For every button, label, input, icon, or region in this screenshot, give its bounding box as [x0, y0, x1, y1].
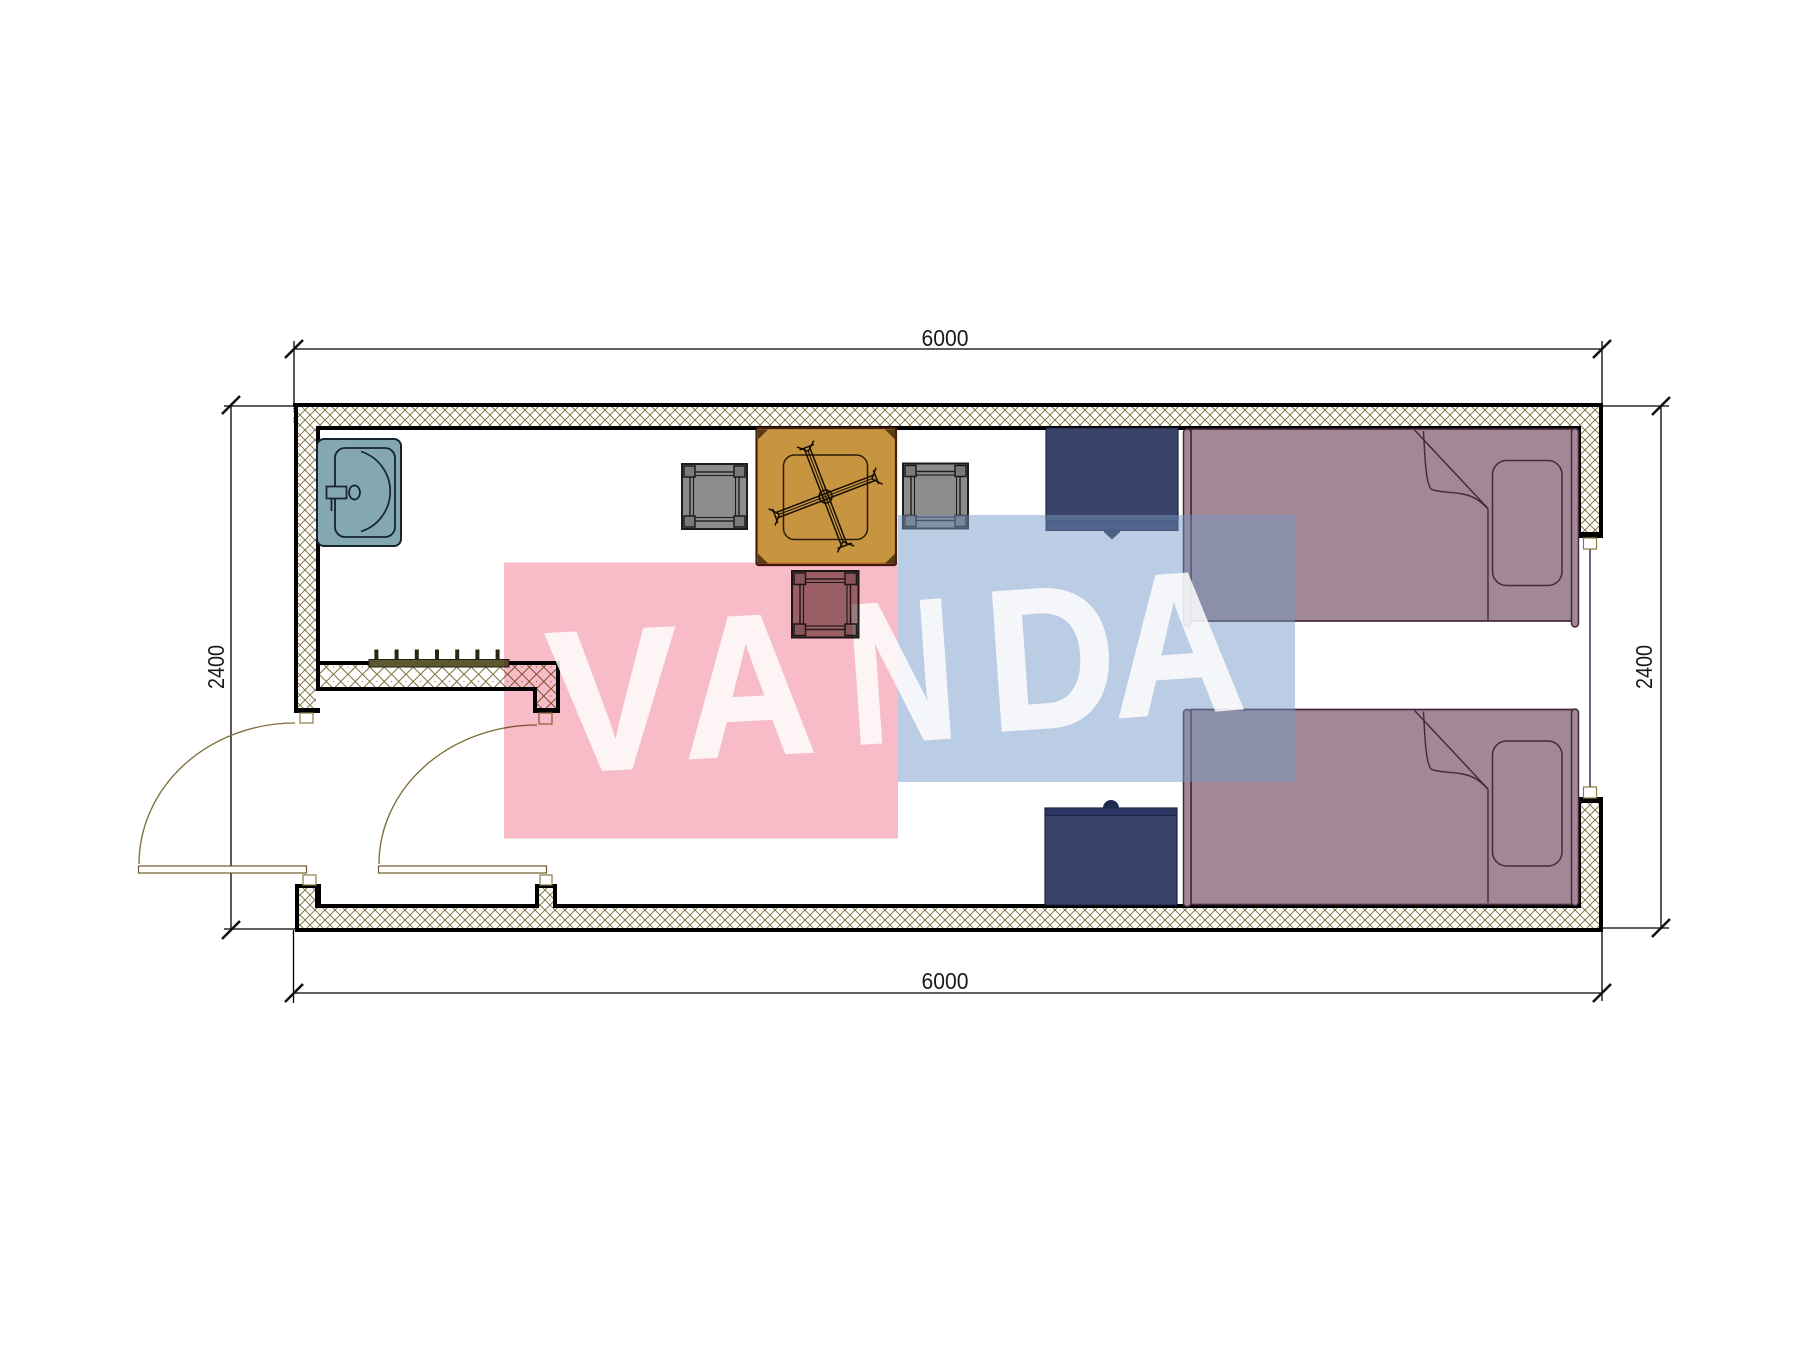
svg-text:2400: 2400	[1631, 645, 1657, 689]
svg-text:A: A	[1103, 528, 1249, 760]
svg-text:6000: 6000	[922, 968, 969, 994]
svg-text:D: D	[978, 542, 1122, 773]
svg-text:6000: 6000	[922, 325, 969, 351]
svg-text:2400: 2400	[203, 645, 229, 689]
svg-text:V: V	[543, 585, 684, 814]
